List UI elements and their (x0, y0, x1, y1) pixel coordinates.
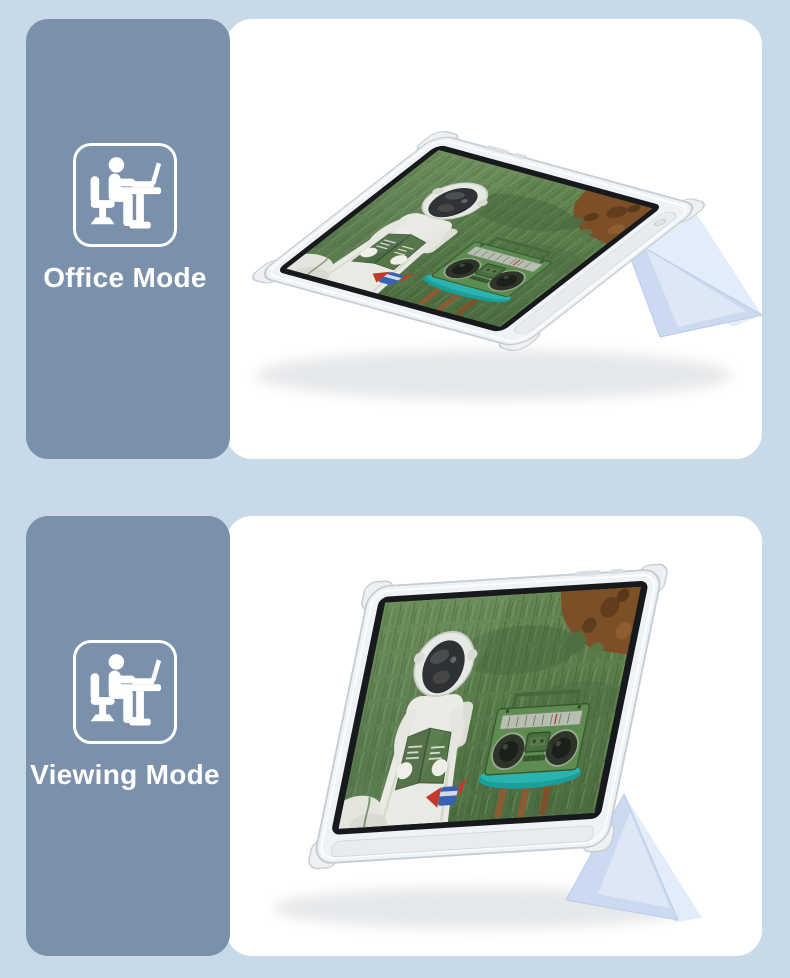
tablet-in-clear-case (248, 129, 710, 352)
person-desk-pictogram (82, 152, 168, 238)
viewing-mode-panel: Viewing Mode (26, 516, 230, 956)
office-mode-label: Office Mode (43, 262, 207, 294)
person-desk-pictogram (82, 649, 168, 735)
person-working-at-desk-icon (73, 143, 177, 247)
viewing-mode-label: Viewing Mode (30, 759, 220, 791)
viewing-mode-photo-card (226, 516, 762, 956)
office-mode-section: Office Mode (26, 19, 762, 459)
office-mode-photo-card (226, 19, 762, 459)
office-mode-panel: Office Mode (26, 19, 230, 459)
tablet-shadow (256, 350, 732, 400)
tablet-case-modes-collage: Office Mode (0, 0, 790, 978)
viewing-mode-product-photo (226, 516, 762, 956)
person-working-at-desk-icon (73, 640, 177, 744)
office-mode-product-photo (226, 19, 762, 459)
viewing-mode-section: Viewing Mode (26, 516, 762, 956)
